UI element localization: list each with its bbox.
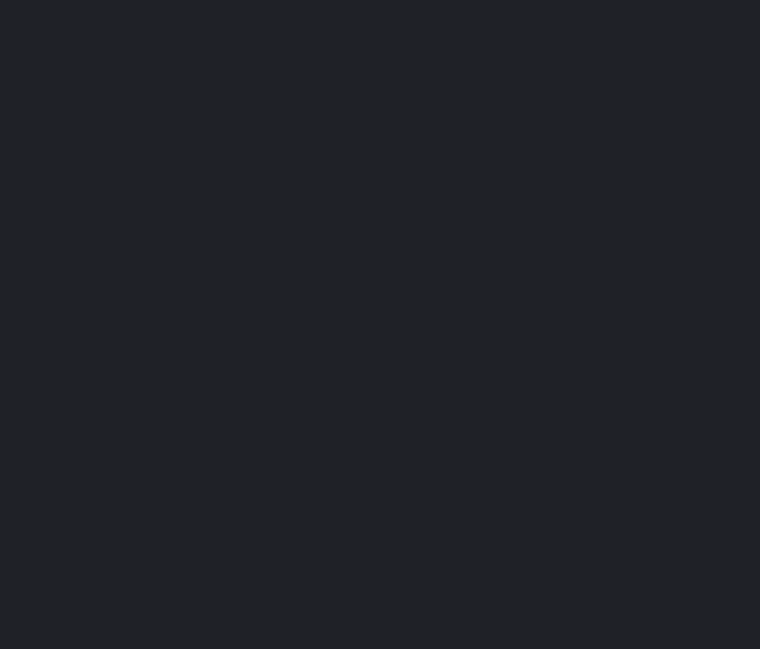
blank-screen: [0, 0, 760, 649]
